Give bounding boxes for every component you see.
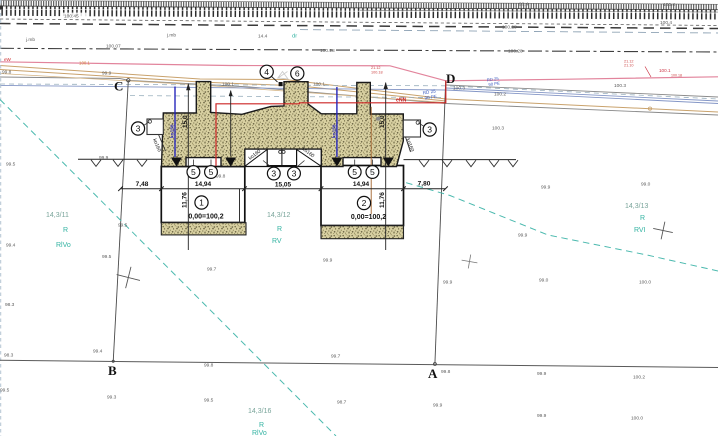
- svg-text:14,94: 14,94: [195, 181, 212, 188]
- svg-text:100.28: 100.28: [320, 48, 335, 54]
- svg-text:99.8: 99.8: [2, 70, 12, 76]
- svg-text:3: 3: [136, 124, 141, 134]
- svg-text:eW: eW: [4, 57, 12, 62]
- svg-text:3: 3: [292, 169, 297, 179]
- svg-text:98.7: 98.7: [337, 400, 347, 406]
- svg-text:dr: dr: [292, 34, 297, 40]
- svg-text:99.0: 99.0: [539, 278, 549, 284]
- svg-text:14.4: 14.4: [258, 34, 268, 40]
- svg-text:100.07: 100.07: [106, 44, 121, 50]
- svg-text:14,3/13: 14,3/13: [625, 203, 648, 210]
- svg-text:5: 5: [370, 167, 375, 177]
- svg-text:C: C: [114, 79, 123, 94]
- svg-text:3: 3: [427, 125, 432, 135]
- svg-text:3: 3: [271, 169, 276, 179]
- svg-text:21.10: 21.10: [624, 64, 634, 68]
- svg-text:99.0: 99.0: [641, 182, 651, 188]
- svg-text:j.mb: j.mb: [25, 37, 35, 43]
- svg-text:5: 5: [191, 167, 196, 177]
- svg-text:99.3: 99.3: [107, 395, 117, 401]
- svg-text:100.1: 100.1: [313, 82, 325, 88]
- svg-text:100.1: 100.1: [79, 61, 91, 66]
- svg-text:RlVo: RlVo: [56, 242, 71, 249]
- svg-text:100.3: 100.3: [614, 83, 626, 89]
- svg-text:2: 2: [362, 198, 367, 208]
- svg-text:99.9: 99.9: [541, 185, 551, 191]
- svg-text:7,48: 7,48: [136, 181, 149, 188]
- svg-text:R: R: [640, 215, 645, 222]
- svg-text:100.45: 100.45: [64, 13, 79, 19]
- svg-text:99.4: 99.4: [6, 243, 16, 249]
- svg-text:15,0: 15,0: [182, 115, 189, 128]
- svg-text:99.9: 99.9: [443, 280, 453, 286]
- svg-text:99.7: 99.7: [331, 354, 341, 360]
- svg-text:99.8: 99.8: [441, 369, 451, 375]
- svg-text:11,76: 11,76: [182, 192, 189, 208]
- svg-text:99.5: 99.5: [118, 223, 128, 229]
- svg-text:99.8: 99.8: [216, 174, 226, 180]
- svg-text:6: 6: [295, 69, 300, 79]
- svg-text:98.3: 98.3: [5, 302, 15, 308]
- svg-text:99.5: 99.5: [204, 398, 214, 404]
- svg-text:100.2: 100.2: [494, 91, 506, 97]
- svg-text:14,3/11: 14,3/11: [46, 212, 69, 219]
- svg-text:eNN: eNN: [396, 98, 407, 104]
- svg-text:14,3/12: 14,3/12: [267, 212, 290, 219]
- svg-text:100.1: 100.1: [222, 81, 234, 87]
- svg-text:100.4: 100.4: [660, 20, 672, 26]
- svg-text:90.4: 90.4: [519, 2, 529, 8]
- svg-text:100.18: 100.18: [371, 70, 383, 74]
- svg-text:100.4: 100.4: [663, 2, 675, 8]
- svg-text:100.2: 100.2: [633, 374, 645, 380]
- svg-text:99.9: 99.9: [433, 402, 443, 408]
- svg-text:99.9: 99.9: [102, 71, 112, 77]
- svg-text:B: B: [108, 363, 117, 378]
- svg-text:100.28: 100.28: [502, 25, 517, 31]
- svg-text:0,00=100,2: 0,00=100,2: [351, 214, 386, 221]
- svg-text:R: R: [63, 227, 68, 234]
- svg-text:100.18: 100.18: [671, 74, 682, 78]
- svg-text:14,3/16: 14,3/16: [248, 408, 271, 415]
- svg-text:5: 5: [352, 167, 357, 177]
- svg-text:5: 5: [209, 167, 214, 177]
- svg-text:99.9: 99.9: [323, 258, 333, 264]
- svg-text:100.1: 100.1: [659, 68, 671, 73]
- svg-text:98.3: 98.3: [4, 353, 14, 359]
- svg-text:R: R: [259, 422, 264, 429]
- svg-text:99.9: 99.9: [537, 413, 547, 419]
- svg-text:R: R: [277, 226, 282, 233]
- svg-text:15,0: 15,0: [379, 115, 386, 128]
- svg-text:99.9: 99.9: [99, 155, 109, 161]
- svg-text:99.9: 99.9: [518, 233, 528, 239]
- svg-text:11,76: 11,76: [379, 192, 386, 208]
- svg-text:99.9: 99.9: [537, 371, 547, 377]
- svg-text:RVI: RVI: [634, 227, 646, 234]
- svg-text:100.3: 100.3: [453, 86, 465, 92]
- svg-text:100.0: 100.0: [639, 280, 651, 286]
- svg-text:0,00=100,2: 0,00=100,2: [188, 214, 223, 221]
- svg-text:99.8: 99.8: [204, 363, 214, 369]
- svg-text:1: 1: [199, 198, 204, 208]
- svg-text:100.28: 100.28: [508, 49, 523, 55]
- svg-text:14,94: 14,94: [353, 181, 370, 188]
- svg-text:j.mb: j.mb: [166, 33, 176, 39]
- svg-text:RV: RV: [272, 238, 282, 245]
- svg-text:7,80: 7,80: [418, 180, 431, 187]
- svg-text:99.5: 99.5: [0, 388, 10, 394]
- svg-text:99.5: 99.5: [102, 254, 112, 260]
- svg-text:ko150: ko150: [170, 124, 176, 138]
- svg-text:ko150: ko150: [332, 124, 338, 138]
- svg-text:99.4: 99.4: [93, 349, 103, 355]
- svg-text:D: D: [446, 71, 455, 86]
- svg-text:100.0: 100.0: [631, 416, 643, 422]
- svg-text:RlVo: RlVo: [252, 430, 267, 436]
- svg-text:4: 4: [264, 67, 269, 77]
- svg-text:100.3: 100.3: [492, 126, 504, 132]
- svg-text:A: A: [428, 366, 438, 381]
- svg-text:99.7: 99.7: [207, 267, 217, 273]
- svg-text:15,05: 15,05: [275, 182, 292, 189]
- svg-text:99.5: 99.5: [6, 162, 16, 168]
